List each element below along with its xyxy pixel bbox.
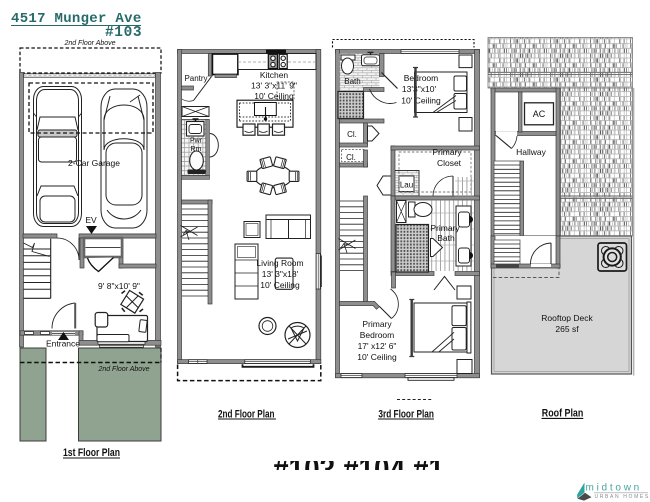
svg-text:Cl.: Cl. (346, 153, 356, 162)
svg-text:9' 8"x10' 9": 9' 8"x10' 9" (98, 281, 140, 291)
svg-text:Bedroom: Bedroom (360, 330, 395, 340)
svg-text:Entrance: Entrance (46, 339, 80, 349)
svg-text:Bath: Bath (344, 77, 360, 86)
svg-text:2nd Floor Above: 2nd Floor Above (63, 40, 115, 47)
svg-text:Bedroom: Bedroom (404, 73, 439, 83)
svg-text:Pwr: Pwr (190, 138, 203, 145)
svg-text:URBAN HOMES: URBAN HOMES (595, 494, 650, 500)
svg-text:#103 #104 #1: #103 #104 #1 (273, 461, 443, 470)
svg-text:Living Room: Living Room (256, 258, 303, 268)
svg-text:10' Ceiling: 10' Ceiling (357, 352, 397, 362)
svg-text:2nd Floor Above: 2nd Floor Above (97, 366, 149, 373)
svg-text:10' Ceiling: 10' Ceiling (401, 96, 441, 106)
svg-text:265 sf: 265 sf (555, 324, 579, 334)
svg-text:Kitchen: Kitchen (260, 70, 289, 80)
svg-text:Rooftop Deck: Rooftop Deck (541, 313, 593, 323)
svg-text:EV: EV (85, 215, 97, 225)
svg-text:17' x12' 6": 17' x12' 6" (358, 341, 397, 351)
svg-text:Roof Plan: Roof Plan (542, 408, 584, 420)
svg-text:Hallway: Hallway (516, 147, 547, 157)
svg-text:1st Floor Plan: 1st Floor Plan (63, 447, 120, 459)
svg-text:13' 3"x18': 13' 3"x18' (262, 269, 299, 279)
svg-text:AC: AC (533, 109, 546, 119)
svg-text:Cl.: Cl. (347, 130, 357, 139)
svg-text:10' Ceiling: 10' Ceiling (254, 91, 294, 101)
svg-text:10' Ceiling: 10' Ceiling (260, 280, 300, 290)
svg-text:Primary: Primary (362, 319, 392, 329)
svg-text:Bath: Bath (437, 233, 455, 243)
svg-text:Lau: Lau (400, 181, 413, 190)
svg-text:2-Car Garage: 2-Car Garage (68, 158, 120, 168)
svg-text:midtown: midtown (586, 483, 643, 494)
svg-text:Closet: Closet (437, 158, 462, 168)
svg-text:13'3"x10': 13'3"x10' (402, 84, 437, 94)
svg-text:Primary: Primary (430, 223, 460, 233)
svg-text:Primary: Primary (432, 147, 462, 157)
svg-text:Pantry: Pantry (184, 74, 207, 83)
svg-text:13' 3"x11' 9": 13' 3"x11' 9" (251, 81, 297, 91)
